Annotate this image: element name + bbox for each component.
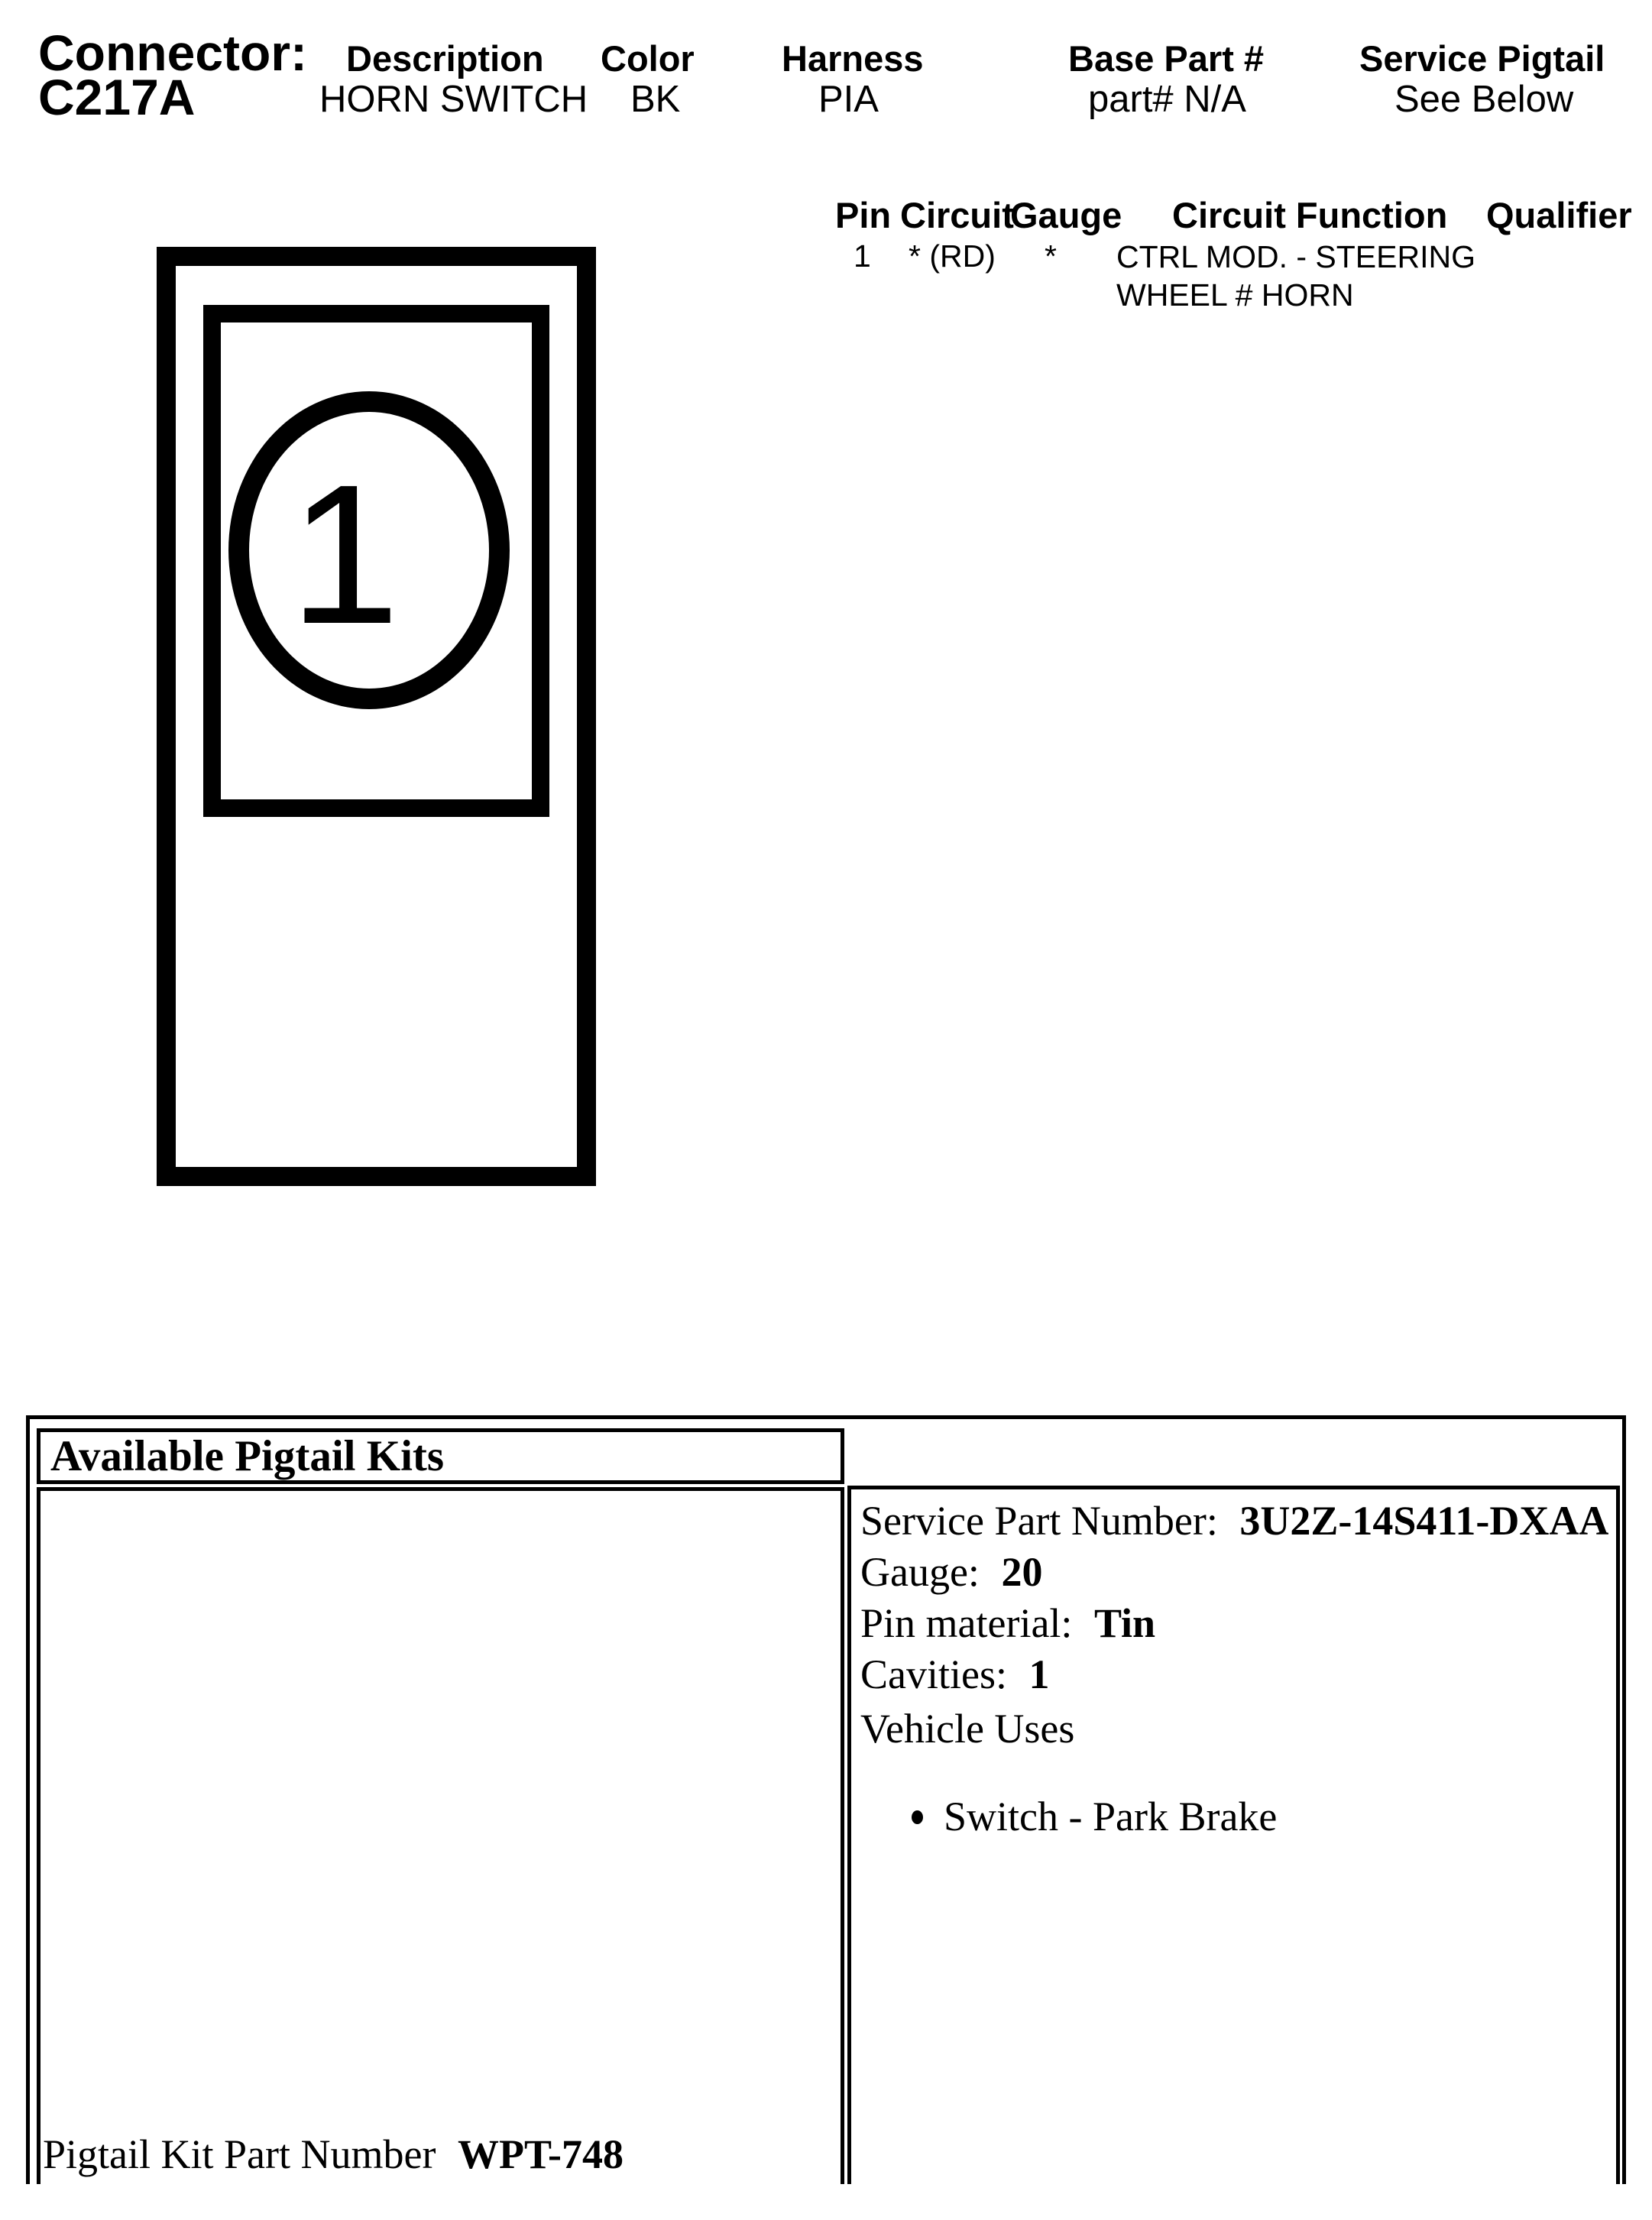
pin-cell-circuit-function: CTRL MOD. - STEERING WHEEL # HORN	[1116, 238, 1475, 314]
vehicle-use-text: Switch - Park Brake	[944, 1791, 1277, 1842]
cavities-label: Cavities:	[860, 1651, 1007, 1697]
pin-table-header-qualifier: Qualifier	[1486, 197, 1632, 233]
value-base-part: part# N/A	[1088, 81, 1246, 118]
gauge-value: 20	[1001, 1549, 1042, 1595]
pigtail-kit-part-number-label: Pigtail Kit Part Number	[43, 2131, 436, 2177]
circuit-function-line2: WHEEL # HORN	[1116, 276, 1475, 314]
pigtail-kits-title: Available Pigtail Kits	[50, 1431, 444, 1481]
pin-cell-circuit: * (RD)	[909, 241, 996, 272]
vehicle-uses-heading: Vehicle Uses	[860, 1703, 1613, 1755]
cavities-value: 1	[1028, 1651, 1049, 1697]
column-header-harness: Harness	[782, 41, 924, 76]
pin-table-header-circuit: Circuit	[900, 197, 1014, 233]
column-header-base-part: Base Part #	[1068, 41, 1264, 76]
value-description: HORN SWITCH	[319, 81, 588, 118]
service-part-number-label: Service Part Number:	[860, 1498, 1218, 1544]
pin-table-header-pin: Pin	[835, 197, 891, 233]
service-part-panel: Service Part Number: 3U2Z-14S411-DXAA Ga…	[847, 1486, 1620, 2184]
pin-cell-gauge: *	[1045, 241, 1057, 272]
circuit-function-line1: CTRL MOD. - STEERING	[1116, 238, 1475, 276]
bullet-icon	[912, 1810, 923, 1824]
pigtail-kit-part-number-value: WPT-748	[458, 2131, 624, 2177]
pin-material-line: Pin material: Tin	[860, 1598, 1613, 1649]
gauge-label: Gauge:	[860, 1549, 980, 1595]
gauge-line: Gauge: 20	[860, 1547, 1613, 1598]
pin-material-label: Pin material:	[860, 1600, 1072, 1646]
value-service-pigtail: See Below	[1394, 81, 1573, 118]
pigtail-kits-title-box: Available Pigtail Kits	[37, 1428, 844, 1484]
cavity-number: 1	[290, 455, 400, 654]
pigtail-kit-part-number-line: Pigtail Kit Part Number WPT-748	[43, 2130, 624, 2179]
column-header-color: Color	[601, 41, 695, 76]
service-part-number-line: Service Part Number: 3U2Z-14S411-DXAA	[860, 1496, 1613, 1547]
connector-id: C217A	[38, 72, 195, 122]
column-header-description: Description	[346, 41, 544, 76]
pin-table-header-gauge: Gauge	[1010, 197, 1122, 233]
pin-cell-pin: 1	[854, 241, 871, 272]
pigtail-kit-cell: Pigtail Kit Part Number WPT-748	[37, 1487, 844, 2184]
column-header-service-pigtail: Service Pigtail	[1359, 41, 1605, 76]
service-part-number-value: 3U2Z-14S411-DXAA	[1239, 1498, 1608, 1544]
pin-material-value: Tin	[1094, 1600, 1155, 1646]
vehicle-use-item: Switch - Park Brake	[912, 1791, 1613, 1842]
connector-spec-page: Connector: C217A Description Color Harne…	[0, 0, 1652, 2220]
value-harness: PIA	[818, 81, 879, 118]
cavities-line: Cavities: 1	[860, 1649, 1613, 1700]
value-color: BK	[630, 81, 680, 118]
cavity-1-circle: 1	[228, 391, 510, 709]
pin-table-header-circuit-function: Circuit Function	[1172, 197, 1447, 233]
